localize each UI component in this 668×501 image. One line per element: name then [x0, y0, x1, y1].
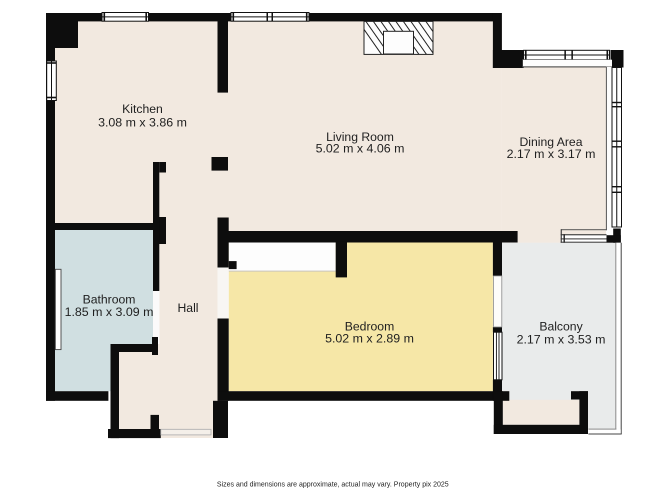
svg-text:3.08 m x 3.86 m: 3.08 m x 3.86 m: [98, 115, 187, 129]
svg-text:2.17 m x 3.53 m: 2.17 m x 3.53 m: [517, 333, 606, 347]
svg-text:1.85 m x 3.09 m: 1.85 m x 3.09 m: [65, 305, 154, 319]
svg-text:Kitchen: Kitchen: [122, 102, 163, 116]
svg-text:Hall: Hall: [178, 301, 199, 315]
svg-text:2.17 m x 3.17 m: 2.17 m x 3.17 m: [507, 147, 596, 161]
svg-text:5.02 m x 2.89 m: 5.02 m x 2.89 m: [325, 331, 414, 345]
svg-text:Sizes and dimensions are appro: Sizes and dimensions are approximate, ac…: [217, 481, 449, 488]
svg-text:5.02 m x 4.06 m: 5.02 m x 4.06 m: [316, 142, 405, 156]
svg-text:Balcony: Balcony: [539, 319, 583, 333]
